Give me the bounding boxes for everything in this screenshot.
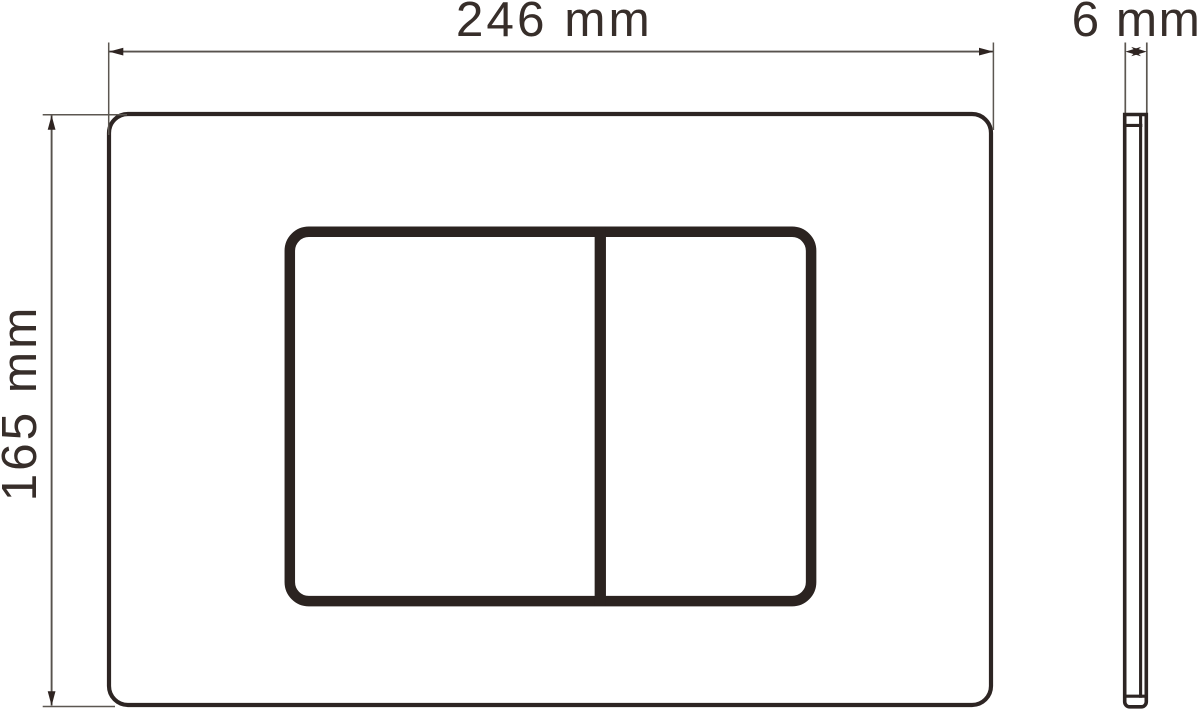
svg-text:246 mm: 246 mm — [456, 0, 653, 47]
svg-text:165 mm: 165 mm — [0, 305, 47, 502]
svg-text:6 mm: 6 mm — [1072, 0, 1200, 47]
